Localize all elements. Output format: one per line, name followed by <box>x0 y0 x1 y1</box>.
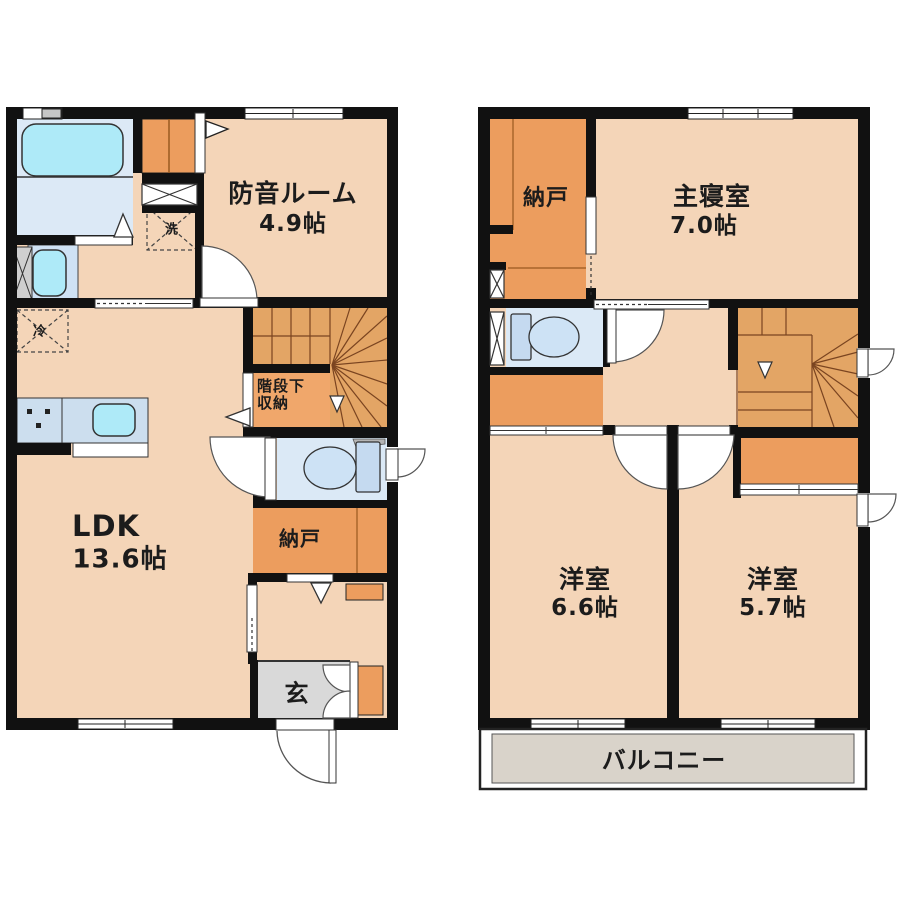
toilet-casement-window <box>397 449 425 477</box>
floorplan-canvas: 防音ルーム 4.9帖 LDK 13.6帖 階段下 収納 納戸 玄 洗 冷 納戸 … <box>0 0 900 900</box>
stair-casement-window <box>868 349 894 375</box>
toilet-tank-floor2 <box>511 314 531 360</box>
hall-cabinet <box>346 584 383 600</box>
toilet-room-floor1 <box>277 438 387 500</box>
western-room-right-area: 5.7帖 <box>739 588 807 622</box>
toilet-tank-floor1 <box>356 442 380 492</box>
western-casement-window <box>868 494 896 522</box>
western-left-door-leaf <box>615 426 667 435</box>
under-stair-storage-line2: 収納 <box>257 395 305 412</box>
wall-hatch-box <box>142 184 197 205</box>
stairs-floor2 <box>737 308 858 427</box>
storage-label-floor2: 納戸 <box>523 180 569 212</box>
storage-sliding-door-floor2 <box>586 197 596 254</box>
wash-basin <box>33 250 66 296</box>
western-room-left-area: 6.6帖 <box>551 588 619 622</box>
toilet-bowl-floor1 <box>304 447 356 489</box>
western-right-door-leaf <box>678 426 730 435</box>
bathtub <box>22 124 123 176</box>
front-door-leaf <box>329 730 336 783</box>
counter-overhang <box>73 443 148 457</box>
toilet-door-leaf-floor1 <box>265 438 276 500</box>
toilet-door-leaf-floor2 <box>607 309 616 363</box>
master-bedroom-area: 7.0帖 <box>670 206 738 240</box>
washer-label: 洗 <box>165 219 179 238</box>
toilet-room-floor2 <box>506 308 603 367</box>
closet-west-floor2 <box>490 375 603 427</box>
shoe-cabinet <box>358 666 383 715</box>
soundproof-panel <box>195 113 205 173</box>
under-stair-storage-label: 階段下 収納 <box>257 378 305 412</box>
kitchen-sink <box>93 404 135 436</box>
toilet-bowl-floor2 <box>529 317 579 357</box>
storage-label-floor1: 納戸 <box>279 523 321 552</box>
floorplan-drawing <box>0 0 900 900</box>
front-door-arc <box>277 731 331 783</box>
balcony-label: バルコニー <box>602 741 727 776</box>
storage-opening-floor1 <box>287 574 333 582</box>
front-door-opening <box>276 719 334 730</box>
floor1-plan <box>6 107 425 783</box>
soundproof-door-leaf <box>200 298 258 307</box>
closet-east-floor2 <box>740 438 858 484</box>
pipe-space-boxes <box>490 270 504 365</box>
entrance-closet-panel <box>350 662 358 718</box>
fridge-label: 冷 <box>33 321 47 340</box>
ldk-area: 13.6帖 <box>72 539 167 576</box>
soundproof-room-area: 4.9帖 <box>259 204 327 238</box>
entrance-label: 玄 <box>285 674 310 709</box>
under-stair-storage-line1: 階段下 <box>257 378 305 395</box>
